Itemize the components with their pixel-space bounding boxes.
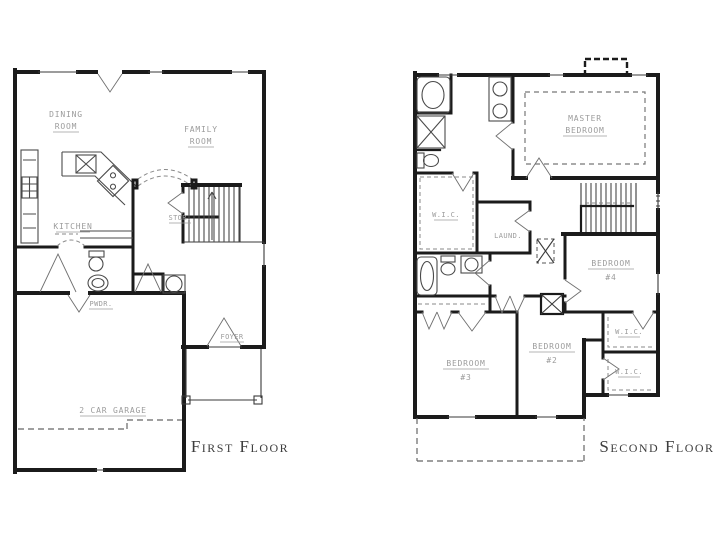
kitchen-label: KITCHEN xyxy=(53,222,92,231)
powder-room-fixtures xyxy=(88,251,185,293)
hall-tub-basin xyxy=(421,262,434,291)
arch-post-left xyxy=(133,180,137,188)
hall-vanity-sink xyxy=(465,258,478,271)
garage-dashed-lines xyxy=(18,420,182,429)
hall-toilet-tank xyxy=(441,256,455,262)
pedestal-sink xyxy=(88,275,108,291)
kitchen-counter xyxy=(62,152,136,205)
bedroom2-label-line2: #2 xyxy=(546,356,557,365)
storage-label: STOR. xyxy=(168,214,191,222)
laundry-label: LAUND. xyxy=(494,232,522,240)
dining-room-label-line2: ROOM xyxy=(55,122,77,131)
second-floor-caption: Second Floor xyxy=(599,437,714,456)
vanity-sink-1 xyxy=(493,82,507,96)
porch-outline xyxy=(186,349,261,400)
linen-closet-x xyxy=(541,294,563,314)
master-closet-label: W.I.C. xyxy=(432,211,460,219)
floorplan-drawing: DINING ROOM FAMILY ROOM KITCHEN STOR. PW… xyxy=(0,0,714,536)
hall-toilet-bowl xyxy=(441,263,455,275)
second-floor-stairs xyxy=(581,183,636,232)
master-bedroom-label-line2: BEDROOM xyxy=(565,126,604,135)
pedestal-sink-basin xyxy=(92,279,104,288)
kitchen-stove xyxy=(97,165,128,196)
stair-treads-2f xyxy=(586,183,631,232)
shower-x xyxy=(417,116,445,148)
chimney-outline xyxy=(585,59,627,75)
floorplan-page: DINING ROOM FAMILY ROOM KITCHEN STOR. PW… xyxy=(0,0,714,536)
garden-tub-basin xyxy=(422,82,444,109)
hall-bath-fixtures xyxy=(417,256,482,295)
hall-chase-x xyxy=(537,239,554,263)
vanity-sink-2 xyxy=(493,104,507,118)
toilet-bowl xyxy=(89,257,103,271)
master-bedroom-label-line1: MASTER xyxy=(568,114,602,123)
patio-dashed-outline xyxy=(417,418,584,461)
cabinet-shelf-lines xyxy=(22,160,37,228)
closet-upper-label: W.I.C. xyxy=(615,328,643,336)
bedroom4-label-line2: #4 xyxy=(605,273,616,282)
master-bath-fixtures xyxy=(417,77,511,168)
first-floor-interior-walls xyxy=(15,187,183,293)
powder-room-label: PWDR. xyxy=(89,300,112,308)
stair-railing xyxy=(581,206,633,232)
foyer-label: FOYER xyxy=(220,333,243,341)
closet-lower-label: W.I.C. xyxy=(615,368,643,376)
garage-label: 2 CAR GARAGE xyxy=(79,406,146,415)
kitchen-counter-opening xyxy=(55,234,85,246)
family-room-label-line2: ROOM xyxy=(190,137,212,146)
stairwell-sides xyxy=(581,183,636,232)
dining-room-label-line1: DINING xyxy=(49,110,83,119)
family-room-label-line1: FAMILY xyxy=(184,125,218,134)
bedroom4-label-line1: BEDROOM xyxy=(591,259,630,268)
water-heater xyxy=(166,276,182,292)
first-floor-stairs xyxy=(183,185,240,242)
toilet-tank xyxy=(89,251,104,257)
first-floor-caption: First Floor xyxy=(191,437,289,456)
bedroom3-label-line2: #3 xyxy=(460,373,471,382)
double-vanity xyxy=(489,77,511,121)
second-floor-plan: MASTER BEDROOM W.I.C. LAUND. BEDROOM #4 … xyxy=(415,59,714,461)
kitchen-sink-x xyxy=(76,155,96,173)
bedroom3-label-line1: BEDROOM xyxy=(446,359,485,368)
front-porch xyxy=(182,349,262,404)
master-toilet-bowl xyxy=(424,155,439,167)
bedroom2-label-line1: BEDROOM xyxy=(532,342,571,351)
first-floor-plan: DINING ROOM FAMILY ROOM KITCHEN STOR. PW… xyxy=(15,70,289,472)
